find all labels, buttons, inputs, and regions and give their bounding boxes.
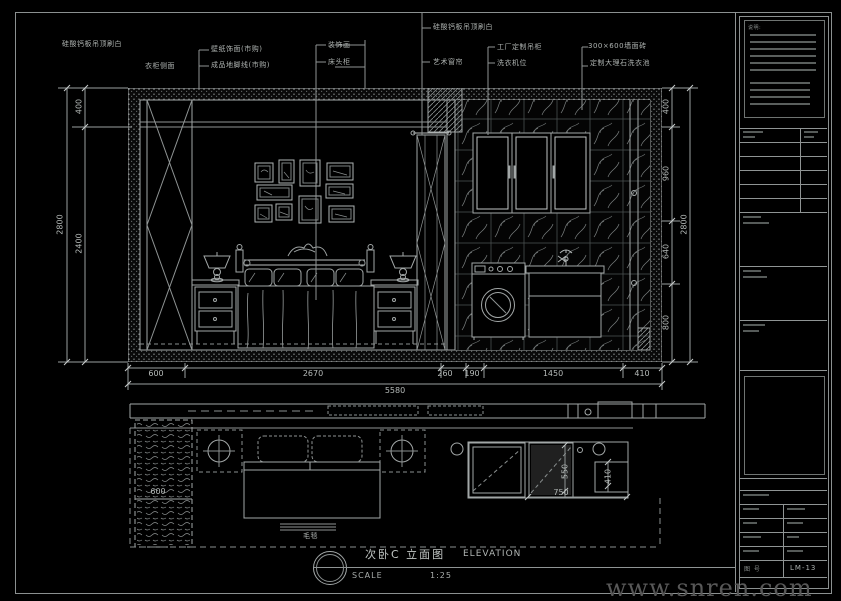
plan-bed-label: 毛毯	[303, 532, 318, 540]
dim-bottom-1: 600	[136, 369, 176, 378]
tb-smudge	[743, 222, 769, 224]
tb-line	[739, 478, 827, 479]
dim-right-2: 960	[662, 159, 671, 189]
scale-value: 1:25	[430, 571, 452, 580]
detail-bubble	[313, 551, 347, 585]
callout-washer: 洗衣机位	[497, 59, 527, 67]
callout-wall-tile: 300×600墙面砖	[588, 42, 647, 50]
tb-line	[739, 128, 827, 129]
tb-line	[739, 170, 827, 171]
dim-bottom-2: 2670	[293, 369, 333, 378]
tb-smudge	[743, 324, 765, 326]
tb-line	[739, 266, 827, 267]
tb-smudge	[743, 216, 761, 218]
dim-plan-cabinet: 410	[604, 462, 613, 492]
tb-line	[739, 490, 827, 491]
notes-text-lines-2	[750, 82, 810, 110]
tb-smudge	[743, 508, 759, 510]
dim-right-total: 2800	[680, 210, 689, 240]
tb-col-divider	[783, 504, 784, 577]
tb-smudge	[743, 550, 759, 552]
tb-smudge	[787, 508, 805, 510]
callout-nightstand: 床头柜	[328, 58, 351, 66]
callout-wallpaper: 壁纸饰面(市购)	[211, 45, 262, 53]
tb-smudge	[804, 136, 814, 138]
dim-plan-wardrobe: 600	[142, 487, 174, 496]
drawing-title: 次卧C 立面图	[365, 546, 445, 562]
callout-hanging-cabinet: 工厂定制吊柜	[497, 43, 542, 51]
tb-smudge	[787, 522, 803, 524]
tb-smudge	[804, 131, 818, 133]
sheet-number: LM-13	[790, 564, 816, 572]
tb-line	[739, 142, 827, 143]
tb-smudge	[743, 136, 755, 138]
tb-line	[739, 320, 827, 321]
callout-curtain: 艺术窗帘	[433, 58, 463, 66]
tb-col-divider	[800, 128, 801, 212]
tb-smudge	[743, 522, 757, 524]
callout-marble-sink: 定制大理石洗衣池	[590, 59, 650, 67]
callout-skirting: 成品地脚线(市购)	[211, 61, 270, 69]
tb-line	[739, 198, 827, 199]
cad-sheet: 硅酸钙板吊顶刷白 衣柜侧面 壁纸饰面(市购) 成品地脚线(市购) 装饰画 床头柜…	[0, 0, 841, 601]
dim-plan-sink-depth: 550	[561, 457, 570, 487]
dim-left-top: 400	[75, 92, 84, 122]
tb-smudge	[743, 270, 761, 272]
dim-bottom-5: 1450	[533, 369, 573, 378]
title-underline	[314, 567, 735, 568]
callout-wardrobe-side: 衣柜侧面	[145, 62, 175, 70]
tb-smudge	[743, 330, 759, 332]
scale-label: SCALE	[352, 571, 383, 580]
tb-smudge	[743, 536, 761, 538]
dim-bottom-6: 410	[622, 369, 662, 378]
dim-right-3: 640	[662, 237, 671, 267]
dim-right-1: 400	[662, 92, 671, 122]
dim-left-total: 2800	[56, 210, 65, 240]
callout-ceiling-left: 硅酸钙板吊顶刷白	[62, 40, 122, 48]
drawing-title-en: ELEVATION	[463, 549, 521, 559]
tb-smudge	[787, 536, 799, 538]
tb-line	[739, 156, 827, 157]
watermark: www.snren.com	[606, 574, 813, 601]
tb-line	[739, 370, 827, 371]
dimension-lines	[0, 0, 841, 601]
tb-smudge	[743, 494, 769, 496]
dim-bottom-4: 190	[460, 369, 484, 378]
callout-ceiling-right: 硅酸钙板吊顶刷白	[433, 23, 493, 31]
notes-text-lines	[750, 34, 816, 76]
dim-bottom-3: 260	[433, 369, 457, 378]
sheet-no-label: 图 号	[744, 564, 761, 573]
dim-left-bottom: 2400	[75, 229, 84, 259]
tb-empty-panel	[744, 376, 825, 475]
tb-smudge	[743, 276, 767, 278]
tb-smudge	[743, 131, 763, 133]
dim-bottom-total: 5580	[375, 386, 415, 395]
tb-line	[739, 212, 827, 213]
dim-right-4: 800	[662, 308, 671, 338]
callout-decor-painting: 装饰画	[328, 41, 351, 49]
tb-line	[739, 184, 827, 185]
dim-plan-sink-width: 750	[545, 488, 577, 497]
notes-title: 说明:	[748, 24, 761, 32]
tb-smudge	[787, 550, 803, 552]
